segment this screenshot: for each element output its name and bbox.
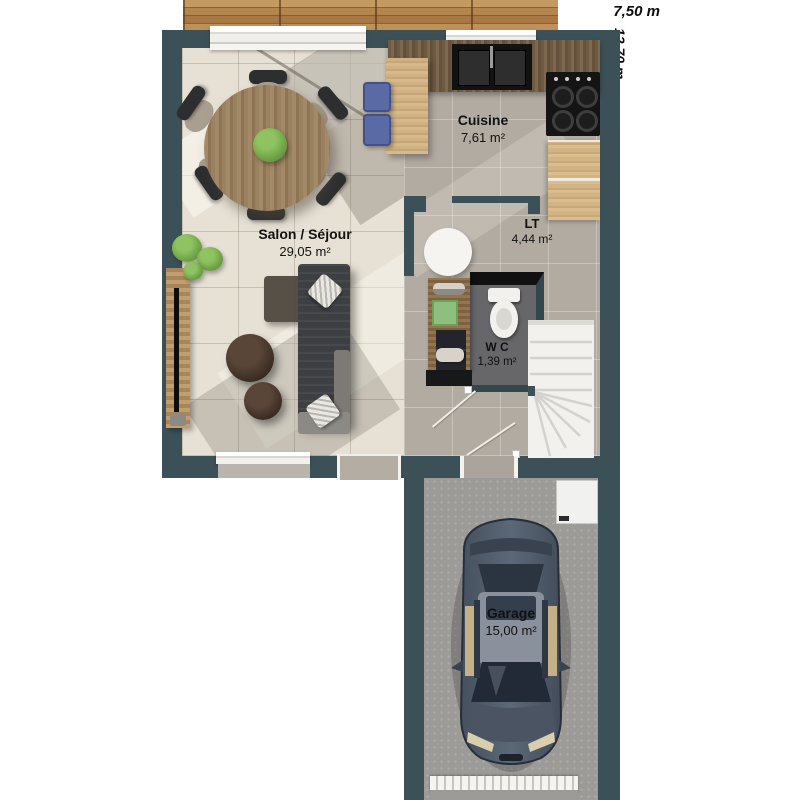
kitchen-cabinet [548,140,600,220]
living-room-window [216,452,310,464]
tv [174,288,179,412]
driveway-apron [430,790,578,800]
room-area: 7,61 m² [428,130,538,146]
floor-plan: 7,50 m 12,70 m [0,0,800,800]
cooktop-knob [576,77,580,81]
staircase [528,320,594,458]
bar-stool [363,114,391,146]
burner [576,86,598,108]
bench [426,370,472,386]
room-label-lt: LT 4,44 m² [492,216,572,247]
dimension-width-label: 7,50 m [566,3,660,20]
door-hinge [464,386,472,394]
partition-wall [528,196,540,214]
sink-basin [458,50,490,86]
room-name: Salon / Séjour [228,226,382,244]
entry-door [337,454,401,480]
room-label-salon: Salon / Séjour 29,05 m² [228,226,382,260]
room-area: 15,00 m² [455,623,567,639]
cooktop-knob [554,77,558,81]
burner [552,110,574,132]
partition-wall [452,196,540,203]
room-label-garage: Garage 15,00 m² [455,605,567,639]
coffee-table [226,334,274,382]
car [448,510,574,776]
room-name: Garage [455,605,567,623]
cooktop [546,72,600,136]
cooktop-knob [587,77,591,81]
garage-interior-door [460,456,518,478]
room-area: 29,05 m² [228,244,382,260]
storage-box [432,300,458,326]
toilet-seat [496,308,512,330]
sliding-glass-door [210,26,366,50]
coffee-table [244,382,282,420]
burner [552,86,574,108]
sink-basin [494,50,526,86]
floor-plant [183,262,203,280]
room-name: W C [460,340,534,355]
toilet [490,300,518,338]
room-name: Cuisine [428,112,538,130]
faucet [490,46,493,68]
burner [576,110,598,132]
sofa-ottoman [264,276,302,322]
room-name: LT [492,216,572,232]
table-plant [253,128,287,162]
exterior-step [218,464,310,480]
kitchen-sink [452,44,532,90]
cabinet-divider [548,178,600,181]
room-area: 1,39 m² [460,355,534,369]
room-label-wc: W C 1,39 m² [460,340,534,369]
room-area: 4,44 m² [492,232,572,247]
garage-wall [598,478,620,800]
cooktop-knob [565,77,569,81]
room-label-cuisine: Cuisine 7,61 m² [428,112,538,146]
garage-wall [404,478,424,800]
decor-object [170,414,186,426]
round-rug [424,228,472,276]
kitchen-island [386,58,428,154]
partition-wall [404,196,426,212]
towels [433,283,465,295]
bar-stool [363,82,391,112]
